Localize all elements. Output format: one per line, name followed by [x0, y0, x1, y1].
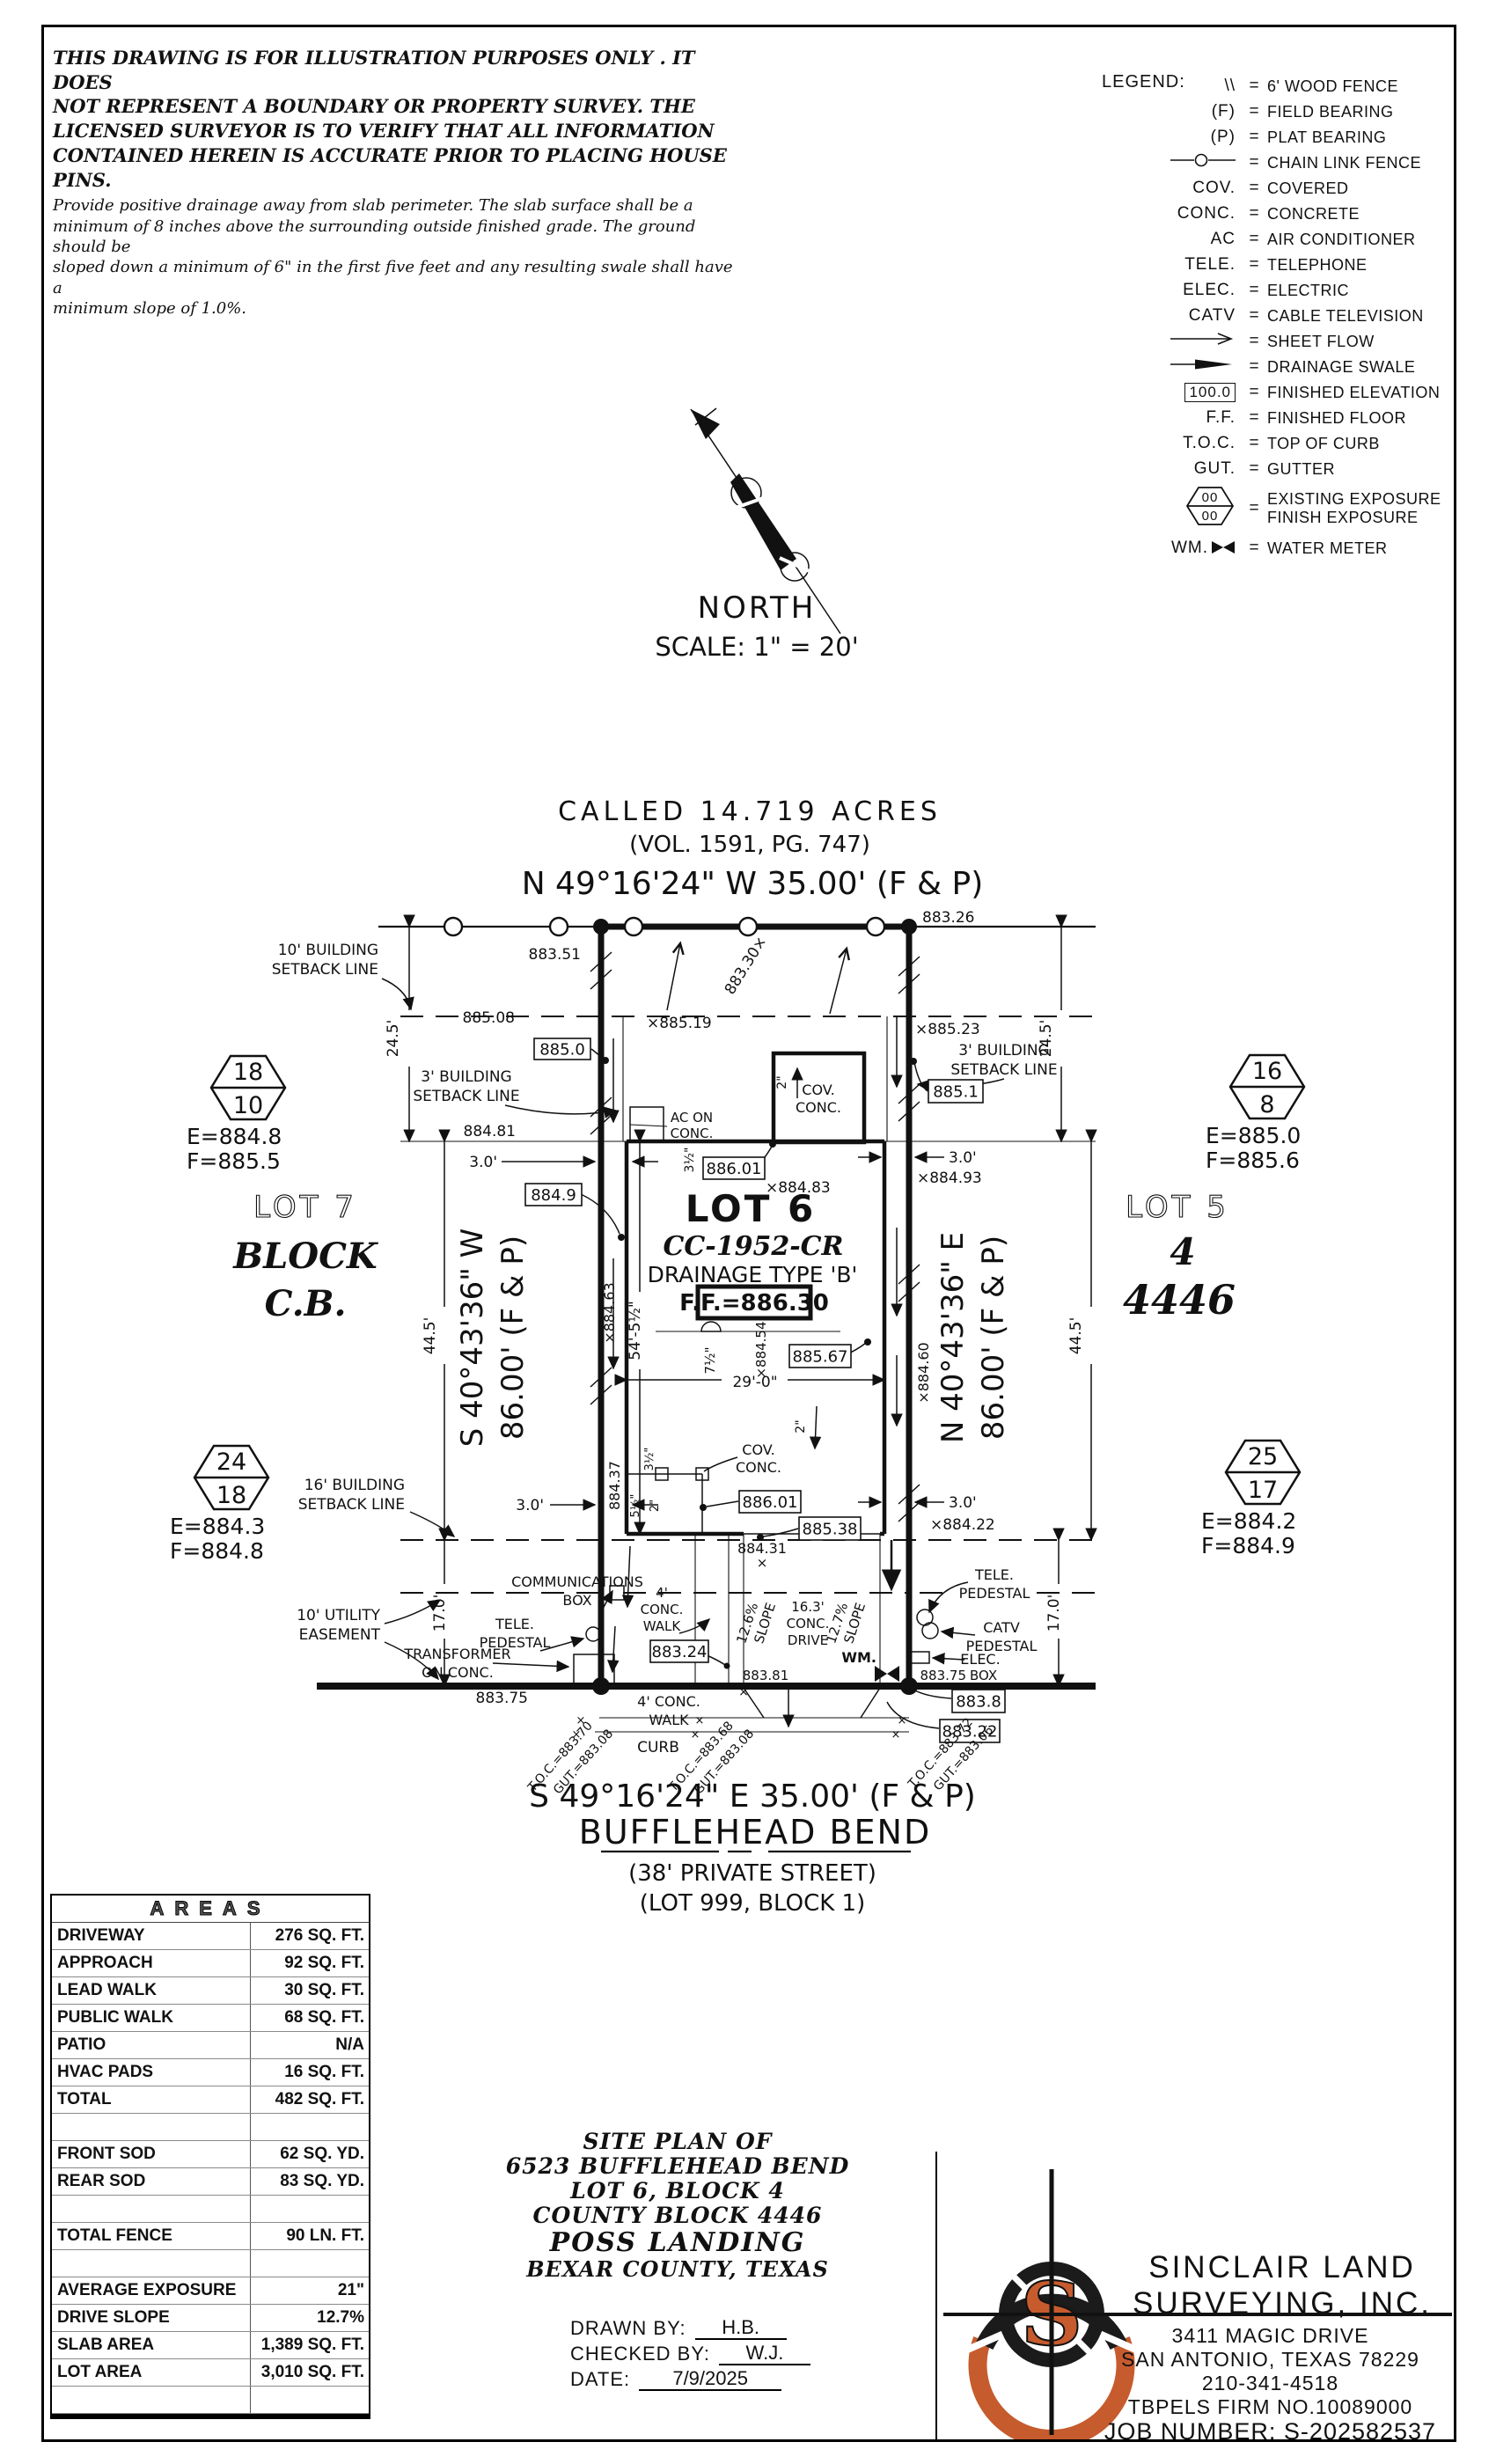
plan-label: 86.00' (F & P) [495, 1236, 531, 1440]
svg-text:18: 18 [233, 1059, 263, 1086]
legend-equals: = [1241, 230, 1267, 249]
legend-equals: = [1241, 102, 1267, 121]
title-line: SITE PLAN OF [488, 2130, 867, 2154]
svg-text:00: 00 [1202, 509, 1219, 524]
areas-row: SLAB AREA1,389 SQ. FT. [52, 2332, 369, 2359]
legend-label: PLAT BEARING [1267, 128, 1457, 147]
plan-label: CONC. [641, 1602, 684, 1617]
plan-label: 883.81 [743, 1668, 789, 1683]
site-plan-document: { "colors": { "accent": "#c65b2d", "ink"… [0, 0, 1496, 2464]
svg-text:16: 16 [1252, 1058, 1282, 1085]
areas-row-value: 62 SQ. YD. [251, 2141, 369, 2167]
legend-equals: = [1241, 332, 1267, 351]
title-line: 6523 BUFFLEHEAD BEND [488, 2154, 867, 2179]
areas-row-value: 21" [251, 2277, 369, 2304]
plan-label: AC ON [671, 1110, 713, 1126]
areas-row-value [251, 2114, 369, 2140]
plan-label: COV. [802, 1082, 834, 1098]
plan-label: × [738, 1685, 749, 1699]
svg-text:885.0: 885.0 [539, 1041, 585, 1060]
legend-label: TELEPHONE [1267, 256, 1457, 275]
plan-label: 16.3' [791, 1599, 825, 1615]
areas-row-label: DRIVE SLOPE [52, 2305, 251, 2331]
legend-label: 6' WOOD FENCE [1267, 77, 1457, 96]
areas-row-label: PATIO [52, 2032, 251, 2058]
plan-label: SETBACK LINE [298, 1496, 405, 1514]
plan-label: 17.0' [431, 1595, 449, 1632]
plan-label: × [695, 1714, 705, 1727]
legend-label: ELECTRIC [1267, 282, 1457, 300]
areas-table-rows: DRIVEWAY276 SQ. FT.APPROACH92 SQ. FT.LEA… [52, 1923, 369, 2414]
legend-symbol: T.O.C. [1102, 434, 1241, 453]
svg-text:886.01: 886.01 [743, 1493, 798, 1512]
date-value: 7/9/2025 [639, 2369, 781, 2391]
plan-label: 884.81 [464, 1123, 516, 1140]
legend-label: COVERED [1267, 180, 1457, 198]
drawn-by-value: H.B. [695, 2318, 787, 2340]
plan-label: × [576, 1714, 586, 1727]
legend-label: FIELD BEARING [1267, 103, 1457, 121]
legend-equals: = [1241, 281, 1267, 300]
areas-row-value: 276 SQ. FT. [251, 1923, 369, 1949]
legend-label: GUTTER [1267, 460, 1457, 479]
areas-row: LEAD WALK30 SQ. FT. [52, 1977, 369, 2005]
areas-row-label [52, 2250, 251, 2277]
legend-symbol: F.F. [1102, 408, 1241, 428]
legend-row: GUT.=GUTTER [1102, 459, 1457, 479]
plan-label: CURB [637, 1739, 679, 1756]
plan-label: 7½" [702, 1347, 718, 1375]
svg-text:885.1: 885.1 [933, 1083, 979, 1102]
svg-text:10: 10 [233, 1092, 263, 1119]
areas-row-label: FRONT SOD [52, 2141, 251, 2167]
areas-row: PATION/A [52, 2032, 369, 2059]
boxed-elevation: 885.1 [928, 1080, 983, 1103]
svg-text:24: 24 [216, 1448, 246, 1476]
exposure-hex-marker: 2517E=884.2F=884.9 [1201, 1441, 1300, 1558]
svg-text:E=885.0: E=885.0 [1206, 1123, 1301, 1148]
plan-label: C.B. [265, 1283, 347, 1324]
areas-row-value: 3,010 SQ. FT. [251, 2359, 369, 2386]
drawn-by-label: DRAWN BY: [570, 2317, 686, 2340]
plan-label: LOT 7 [253, 1190, 357, 1225]
legend-equals: = [1241, 499, 1267, 518]
exposure-hex-marker: 168E=885.0F=885.6 [1206, 1055, 1304, 1173]
legend-label: AIR CONDITIONER [1267, 231, 1457, 249]
areas-row-value: 482 SQ. FT. [251, 2086, 369, 2113]
plan-label: CATV [983, 1619, 1020, 1636]
areas-row: LOT AREA3,010 SQ. FT. [52, 2359, 369, 2387]
plan-label: LOT 5 [1126, 1190, 1229, 1225]
legend-row: (F)=FIELD BEARING [1102, 102, 1457, 121]
areas-row-label: HVAC PADS [52, 2059, 251, 2086]
plan-label: 16' BUILDING [304, 1477, 405, 1494]
plan-label: × [572, 1728, 582, 1742]
checked-by-label: CHECKED BY: [570, 2343, 710, 2365]
plan-label: ON CONC. [422, 1664, 494, 1681]
plan-label: (VOL. 1591, PG. 747) [629, 832, 870, 858]
plan-label: 2" [775, 1075, 789, 1089]
legend-equals: = [1241, 77, 1267, 96]
areas-row-label: AVERAGE EXPOSURE [52, 2277, 251, 2304]
legend-row: CATV=CABLE TELEVISION [1102, 306, 1457, 326]
legend-symbol: AC [1102, 230, 1241, 249]
legend-label: CONCRETE [1267, 205, 1457, 224]
plan-label: CALLED 14.719 ACRES [558, 796, 942, 827]
legend-row: TELE.=TELEPHONE [1102, 255, 1457, 275]
legend-label: CABLE TELEVISION [1267, 307, 1457, 326]
plan-label: CONC. [736, 1459, 781, 1476]
svg-text:17: 17 [1248, 1477, 1278, 1504]
plan-label: COMMUNICATIONS [511, 1573, 643, 1590]
svg-text:E=884.2: E=884.2 [1201, 1508, 1296, 1534]
areas-row [52, 2250, 369, 2277]
legend-equals: = [1241, 408, 1267, 428]
legend-symbol: CONC. [1102, 204, 1241, 224]
areas-row [52, 2114, 369, 2141]
areas-row-label: LOT AREA [52, 2359, 251, 2386]
svg-text:00: 00 [1202, 490, 1219, 505]
areas-row: DRIVEWAY276 SQ. FT. [52, 1923, 369, 1950]
legend-row: AC=AIR CONDITIONER [1102, 230, 1457, 249]
plan-label: 5½" [629, 1494, 642, 1518]
areas-row: REAR SOD83 SQ. YD. [52, 2168, 369, 2196]
boxed-elevation: 883.8 [952, 1690, 1005, 1712]
legend-equals: = [1241, 459, 1267, 479]
areas-row-label: SLAB AREA [52, 2332, 251, 2358]
plan-label: 885.08 [463, 1009, 515, 1027]
legend-row: T.O.C.=TOP OF CURB [1102, 434, 1457, 453]
areas-row-value: 30 SQ. FT. [251, 1977, 369, 2004]
plan-label: 4' [656, 1585, 668, 1601]
areas-row-label: TOTAL [52, 2086, 251, 2113]
firm-address: 3411 MAGIC DRIVE SAN ANTONIO, TEXAS 7822… [1087, 2324, 1454, 2420]
svg-text:E=884.3: E=884.3 [170, 1514, 265, 1539]
plan-label: BOX [970, 1668, 997, 1683]
plan-label: ×884.93 [917, 1170, 982, 1187]
legend-row: (P)=PLAT BEARING [1102, 128, 1457, 147]
plan-label: × [757, 1555, 768, 1571]
areas-row-label: APPROACH [52, 1950, 251, 1976]
plan-label: TELE. [495, 1616, 534, 1632]
svg-text:F=885.6: F=885.6 [1206, 1148, 1300, 1173]
legend-equals: = [1241, 357, 1267, 377]
areas-row-value: 12.7% [251, 2305, 369, 2331]
svg-text:E=884.8: E=884.8 [187, 1124, 282, 1149]
plan-label: S 49°16'24" E 35.00' (F & P) [529, 1778, 976, 1815]
areas-row-label: TOTAL FENCE [52, 2223, 251, 2249]
site-plan-drawing: 885.0885.1886.01884.9885.67886.01885.388… [158, 788, 1346, 1918]
legend-equals: = [1241, 255, 1267, 275]
title-line: COUNTY BLOCK 4446 [488, 2204, 867, 2228]
legend-label: EXISTING EXPOSURE FINISH EXPOSURE [1267, 490, 1457, 526]
areas-row [52, 2387, 369, 2414]
plan-label: 17.0' [1045, 1595, 1063, 1632]
plan-label: 883.30× [722, 934, 771, 998]
areas-row-value: 90 LN. FT. [251, 2223, 369, 2249]
legend-label: WATER METER [1267, 539, 1457, 558]
areas-row-value: N/A [251, 2032, 369, 2058]
boxed-elevation: 885.38 [799, 1517, 861, 1540]
boxed-elevation: 885.67 [789, 1345, 851, 1368]
catv-pedestal-symbol [922, 1623, 938, 1639]
areas-row: APPROACH92 SQ. FT. [52, 1950, 369, 1977]
boxed-elevation: F.F.=886.30 [679, 1287, 829, 1318]
plan-label: 3.0' [469, 1154, 497, 1171]
plan-label: ×884.22 [930, 1516, 995, 1534]
areas-row-value: 68 SQ. FT. [251, 2005, 369, 2031]
plan-label: 3.0' [516, 1497, 544, 1514]
boxed-elevation: 885.0 [534, 1038, 590, 1060]
plan-label: 24.5' [385, 1020, 402, 1058]
boxed-elevation: 883.24 [650, 1640, 708, 1662]
plan-label: 3' BUILDING [958, 1042, 1049, 1060]
plan-label: 54'-5½" [627, 1301, 644, 1360]
plan-label: 3' BUILDING [421, 1068, 511, 1086]
legend-label: CHAIN LINK FENCE [1267, 154, 1457, 172]
legend-equals: = [1241, 434, 1267, 453]
legend-row: WM.=WATER METER [1102, 539, 1457, 558]
plan-label: CONC. [787, 1616, 830, 1632]
plan-label: N 40°43'36" E [935, 1232, 971, 1443]
plan-label: 3.0' [949, 1149, 977, 1167]
legend-label: SHEET FLOW [1267, 333, 1457, 351]
plan-label: 884.37 [606, 1461, 623, 1510]
legend-row: 0000=EXISTING EXPOSURE FINISH EXPOSURE [1102, 485, 1457, 532]
svg-text:886.01: 886.01 [707, 1160, 762, 1178]
legend-symbol: CATV [1102, 306, 1241, 326]
chain-link-icon [1102, 153, 1241, 172]
areas-row-label [52, 2196, 251, 2222]
title-line: LOT 6, BLOCK 4 [488, 2179, 867, 2204]
areas-row: FRONT SOD62 SQ. YD. [52, 2141, 369, 2168]
areas-row-label: PUBLIC WALK [52, 2005, 251, 2031]
legend-row: =DRAINAGE SWALE [1102, 357, 1457, 377]
plan-label: 44.5' [422, 1317, 439, 1355]
plan-label: SETBACK LINE [413, 1088, 519, 1105]
svg-text:883.8: 883.8 [956, 1693, 1001, 1712]
legend-symbol: COV. [1102, 179, 1241, 198]
plan-label: 2" [794, 1419, 808, 1433]
plan-label: BOX [562, 1592, 591, 1609]
areas-row: AVERAGE EXPOSURE21" [52, 2277, 369, 2305]
disclaimer-block: THIS DRAWING IS FOR ILLUSTRATION PURPOSE… [53, 46, 739, 319]
plan-label: 883.75 [920, 1668, 967, 1683]
svg-text:883.24: 883.24 [652, 1643, 708, 1661]
water-meter-icon [887, 1666, 899, 1682]
legend-symbol: 0000 [1102, 485, 1241, 532]
legend-label: DRAINAGE SWALE [1267, 358, 1457, 377]
areas-row [52, 2196, 369, 2223]
plan-label: PEDESTAL [959, 1585, 1030, 1602]
legend-row: =SHEET FLOW [1102, 332, 1457, 351]
svg-text:884.9: 884.9 [531, 1186, 576, 1205]
plan-label: DRIVE [788, 1632, 828, 1648]
legend-symbol: ELEC. [1102, 281, 1241, 300]
date-label: DATE: [570, 2368, 630, 2391]
plan-label: WALK [643, 1618, 682, 1634]
boxed-elevation: 886.01 [739, 1491, 801, 1513]
plan-label: ×884.60 [915, 1342, 932, 1403]
legend-row: CONC.=CONCRETE [1102, 204, 1457, 224]
plan-label: SETBACK LINE [272, 961, 378, 979]
areas-table-title: AREAS [52, 1896, 369, 1923]
areas-row-label: LEAD WALK [52, 1977, 251, 2004]
areas-row: PUBLIC WALK68 SQ. FT. [52, 2005, 369, 2032]
legend-equals: = [1241, 153, 1267, 172]
plan-label: 3½" [643, 1448, 656, 1471]
legend-row: COV.=COVERED [1102, 179, 1457, 198]
scale-label: SCALE: 1" = 20' [655, 632, 858, 660]
legend-symbol: GUT. [1102, 459, 1241, 479]
areas-row-value [251, 2387, 369, 2413]
plan-label: 29'-0" [732, 1374, 777, 1391]
legend-row: 100.0=FINISHED ELEVATION [1102, 383, 1457, 402]
plan-label: ×885.23 [915, 1021, 980, 1038]
areas-row-value [251, 2250, 369, 2277]
subdivision-name: POSS LANDING [488, 2228, 867, 2258]
svg-text:F=884.9: F=884.9 [1201, 1533, 1295, 1558]
plan-label: × [898, 1714, 907, 1727]
plan-label: 883.75 [476, 1690, 528, 1707]
areas-row-value [251, 2196, 369, 2222]
areas-row: TOTAL FENCE90 LN. FT. [52, 2223, 369, 2250]
plan-label: (38' PRIVATE STREET) [628, 1860, 876, 1887]
svg-text:18: 18 [216, 1482, 246, 1509]
plan-label: ELEC. [960, 1651, 1000, 1668]
plan-label: CONC. [671, 1126, 714, 1141]
exposure-hex-marker: 1810E=884.8F=885.5 [187, 1056, 285, 1174]
svg-text:F.F.=886.30: F.F.=886.30 [679, 1290, 829, 1316]
plan-label: DRAINAGE TYPE 'B' [648, 1262, 858, 1287]
areas-row: DRIVE SLOPE12.7% [52, 2305, 369, 2332]
legend-equals: = [1241, 306, 1267, 326]
plan-label: × [891, 1728, 901, 1742]
north-label: NORTH [698, 590, 817, 626]
areas-row-value: 83 SQ. YD. [251, 2168, 369, 2195]
legend-symbol: (P) [1102, 128, 1241, 147]
plan-label: TRANSFORMER [403, 1646, 510, 1662]
legend-title: LEGEND: [1102, 72, 1185, 92]
legend-equals: = [1241, 128, 1267, 147]
plan-label: 2" [649, 1500, 662, 1512]
areas-table: AREAS DRIVEWAY276 SQ. FT.APPROACH92 SQ. … [50, 1894, 370, 2419]
legend-row: =CHAIN LINK FENCE [1102, 153, 1457, 172]
water-meter-icon [875, 1666, 887, 1682]
ac-pad [630, 1107, 664, 1141]
plan-label: (LOT 999, BLOCK 1) [640, 1890, 865, 1917]
plan-label: 10' BUILDING [278, 942, 378, 959]
plan-label: ×884.63 [601, 1282, 618, 1343]
svg-text:F=885.5: F=885.5 [187, 1148, 281, 1174]
plan-label: 10' UTILITY [297, 1607, 380, 1624]
svg-text:25: 25 [1248, 1443, 1278, 1470]
plan-label: CC-1952-CR [664, 1231, 844, 1262]
plan-label: N 49°16'24" W 35.00' (F & P) [522, 866, 984, 902]
legend-rows: \\=6' WOOD FENCE(F)=FIELD BEARING(P)=PLA… [1102, 77, 1457, 558]
plan-label: 883.26 [922, 909, 974, 927]
plan-label: COV. [742, 1441, 774, 1458]
plan-label: 4446 [1123, 1276, 1236, 1324]
plan-label: LOT 6 [686, 1187, 816, 1230]
legend-equals: = [1241, 539, 1267, 558]
legend-label: FINISHED FLOOR [1267, 409, 1457, 428]
county-line: BEXAR COUNTY, TEXAS [488, 2258, 867, 2282]
plan-label: EASEMENT [299, 1626, 381, 1644]
svg-text:8: 8 [1259, 1091, 1274, 1118]
areas-row-label: DRIVEWAY [52, 1923, 251, 1949]
sheet-flow-arrow-icon [1102, 332, 1241, 351]
plan-label: WALK [649, 1712, 689, 1728]
legend-equals: = [1241, 179, 1267, 198]
plan-label: × [691, 1728, 700, 1742]
plan-label: 86.00' (F & P) [976, 1236, 1011, 1440]
plan-label: 883.51 [529, 946, 581, 964]
plan-label: 4 [1170, 1230, 1195, 1273]
areas-row: TOTAL482 SQ. FT. [52, 2086, 369, 2114]
disclaimer-paragraph-1: THIS DRAWING IS FOR ILLUSTRATION PURPOSE… [53, 46, 739, 192]
legend-row: F.F.=FINISHED FLOOR [1102, 408, 1457, 428]
areas-row-label [52, 2114, 251, 2140]
legend-symbol: TELE. [1102, 255, 1241, 275]
areas-row-label: REAR SOD [52, 2168, 251, 2195]
plan-label: 3½" [683, 1148, 697, 1173]
drainage-swale-arrow-icon [1102, 357, 1241, 377]
exposure-hex-marker: 2418E=884.3F=884.8 [170, 1446, 268, 1564]
svg-text:885.38: 885.38 [803, 1521, 858, 1539]
legend-symbol: (F) [1102, 102, 1241, 121]
title-block: SITE PLAN OF 6523 BUFFLEHEAD BEND LOT 6,… [488, 2130, 867, 2281]
areas-row-label [52, 2387, 251, 2413]
legend-equals: = [1241, 204, 1267, 224]
plan-label: ×884.54 [753, 1321, 769, 1378]
areas-row-value: 1,389 SQ. FT. [251, 2332, 369, 2358]
transformer-symbol [574, 1654, 614, 1684]
checked-by-value: W.J. [719, 2343, 810, 2365]
legend-row: ELEC.=ELECTRIC [1102, 281, 1457, 300]
boxed-elevation: 886.01 [703, 1157, 765, 1179]
legend-label: TOP OF CURB [1267, 435, 1457, 453]
plan-label: WM. [841, 1649, 876, 1666]
plan-label: S 40°43'36" W [455, 1228, 490, 1448]
plan-label: 4' CONC. [637, 1693, 700, 1710]
signoff-block: DRAWN BY: H.B. CHECKED BY: W.J. DATE: 7/… [570, 2314, 834, 2391]
plan-label: 44.5' [1067, 1317, 1085, 1355]
job-number: JOB NUMBER: S-202582537 [1087, 2418, 1454, 2446]
boxed-elevation: 884.9 [525, 1184, 582, 1206]
plan-label: BLOCK [232, 1236, 379, 1277]
legend-label: FINISHED ELEVATION [1267, 384, 1457, 402]
disclaimer-paragraph-2: Provide positive drainage away from slab… [53, 195, 739, 319]
areas-row-value: 92 SQ. FT. [251, 1950, 369, 1976]
plan-label: TELE. [974, 1566, 1014, 1583]
svg-text:F=884.8: F=884.8 [170, 1538, 264, 1564]
north-arrow: NORTH SCALE: 1" = 20' [607, 370, 898, 660]
legend-equals: = [1241, 383, 1267, 402]
elec-box-symbol [910, 1652, 929, 1663]
areas-row: HVAC PADS16 SQ. FT. [52, 2059, 369, 2086]
plan-label: SETBACK LINE [950, 1061, 1057, 1079]
plan-label: BUFFLEHEAD BEND [579, 1813, 931, 1852]
svg-text:885.67: 885.67 [793, 1348, 848, 1367]
plan-label: ×885.19 [647, 1015, 712, 1032]
legend: LEGEND: \\=6' WOOD FENCE(F)=FIELD BEARIN… [1102, 70, 1457, 558]
areas-row-value: 16 SQ. FT. [251, 2059, 369, 2086]
firm-name: SINCLAIR LAND SURVEYING, INC. [1111, 2249, 1454, 2322]
legend-symbol: WM. [1102, 539, 1241, 558]
legend-symbol: 100.0 [1102, 383, 1241, 402]
plan-label: 3.0' [949, 1494, 977, 1512]
